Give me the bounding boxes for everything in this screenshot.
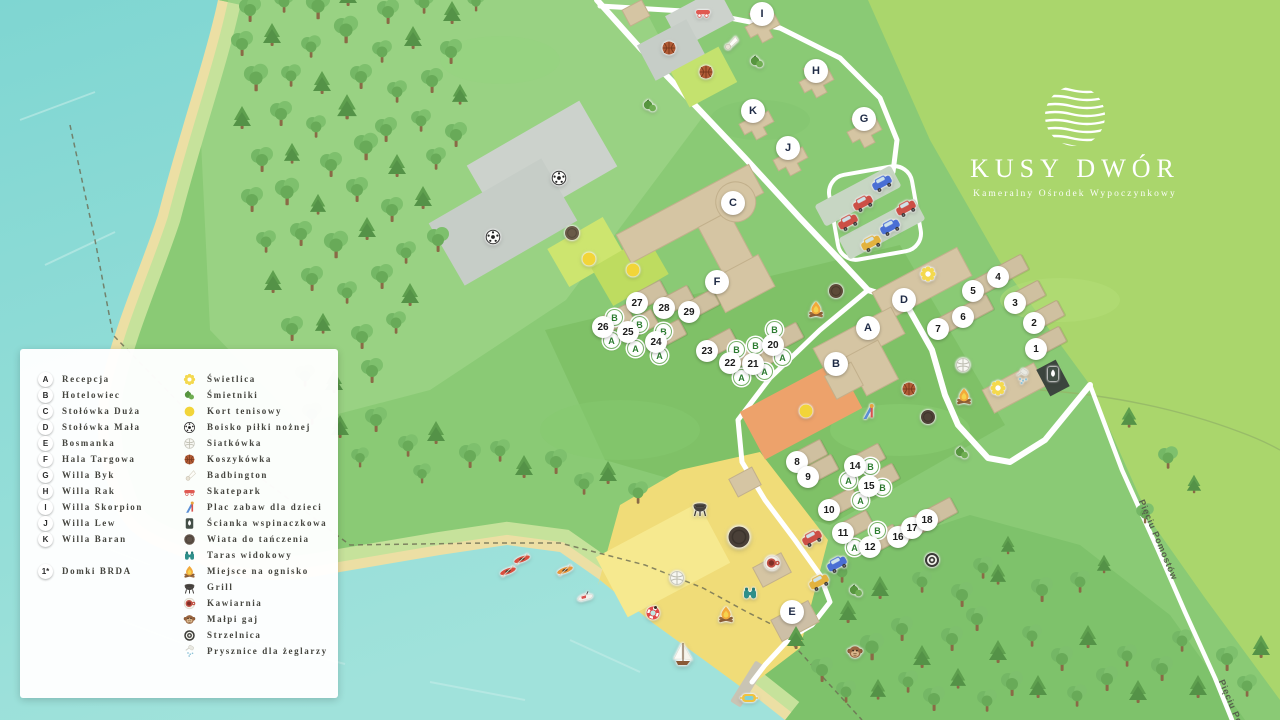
round-tree: [352, 130, 381, 169]
legend-building-label: Hotelowiec: [62, 390, 120, 400]
pine-tree: [913, 643, 931, 674]
round-tree: [350, 445, 371, 473]
round-tree: [279, 313, 305, 348]
round-tree: [1156, 444, 1179, 476]
pine-tree: [989, 638, 1007, 669]
round-tree: [488, 437, 511, 469]
plac-zabaw-icon: [858, 402, 878, 422]
cottage-badge-18: 18: [916, 509, 938, 531]
swietlica-icon: [988, 378, 1008, 398]
legend-amenity-row: Koszykówka: [180, 451, 338, 467]
round-tree: [394, 239, 417, 271]
cottage-badge-20: 20: [762, 334, 784, 356]
pine-tree: [1187, 473, 1201, 498]
legend-amenity-label: Taras widokowy: [207, 550, 292, 560]
round-tree: [268, 98, 294, 133]
pine-tree: [990, 562, 1006, 590]
round-tree: [304, 0, 333, 27]
badminton-icon: [180, 467, 198, 483]
kort-icon: [180, 403, 198, 419]
round-tree: [373, 114, 399, 149]
legend-amenity-row: Boisko piłki nożnej: [180, 419, 338, 435]
building-badge-H: H: [804, 59, 828, 83]
smietniki-icon: [747, 52, 767, 72]
legend-building-badge: E: [38, 436, 53, 451]
legend-building-badge: C: [38, 404, 53, 419]
cottage-badge-29: 29: [678, 301, 700, 323]
round-tree: [1235, 672, 1258, 704]
round-tree: [384, 309, 407, 341]
legend-amenity-label: Wiata do tańczenia: [207, 534, 310, 544]
pine-tree: [339, 0, 357, 12]
round-tree: [299, 33, 322, 65]
round-tree: [543, 446, 569, 481]
legend-amenity-label: Kawiarnia: [207, 598, 262, 608]
legend-amenity-label: Kort tenisowy: [207, 406, 282, 416]
legend-amenity-label: Koszykówka: [207, 454, 272, 464]
ognisko-icon: [180, 563, 198, 579]
pine-tree: [1121, 405, 1137, 433]
legend-building-row: H Willa Rak: [38, 483, 180, 499]
building-badge-G: G: [852, 107, 876, 131]
legend-panel: A Recepcja B Hotelowiec C Stołówka Duża …: [20, 349, 338, 698]
wiata-icon: [562, 223, 582, 243]
legend-cottages-badge: 1*: [38, 564, 53, 579]
legend-amenity-label: Skatepark: [207, 486, 261, 496]
pine-tree: [515, 453, 533, 484]
siatkowka-icon: [667, 568, 687, 588]
sailboat-icon: [669, 639, 697, 667]
cottage-badge-4: 4: [987, 266, 1009, 288]
round-tree: [1214, 643, 1240, 678]
legend-building-badge: G: [38, 468, 53, 483]
legend-amenity-row: Miejsce na ognisko: [180, 563, 338, 579]
round-tree: [457, 440, 483, 475]
pine-tree: [358, 215, 376, 246]
koszykowka-icon: [696, 62, 716, 82]
legend-building-label: Willa Baran: [62, 534, 127, 544]
round-tree: [379, 194, 405, 229]
round-tree: [1065, 682, 1088, 714]
jetski-icon: [574, 588, 594, 608]
logo-waves-icon: [955, 84, 1195, 148]
boisko-icon: [483, 227, 503, 247]
round-tree: [412, 461, 433, 489]
legend-building-label: Willa Skorpion: [62, 502, 143, 512]
koszykowka-icon: [180, 451, 198, 467]
legend-building-row: F Hala Targowa: [38, 451, 180, 467]
wiata-icon: [724, 522, 754, 552]
swietlica-icon: [180, 371, 198, 387]
pine-tree: [337, 92, 357, 126]
round-tree: [375, 0, 401, 31]
legend-amenity-row: Skatepark: [180, 483, 338, 499]
round-tree: [359, 355, 385, 390]
legend-amenities-column: Świetlica Śmietniki Kort tenisowy Boisko…: [180, 371, 338, 659]
cottage-badge-23: 23: [696, 340, 718, 362]
grill-icon: [180, 579, 198, 595]
round-tree: [1170, 627, 1193, 659]
legend-building-row: B Hotelowiec: [38, 387, 180, 403]
legend-building-row: E Bosmanka: [38, 435, 180, 451]
skatepark-icon: [180, 483, 198, 499]
plac-zabaw-icon: [180, 499, 198, 515]
building-badge-K: K: [741, 99, 765, 123]
pine-tree: [310, 192, 326, 220]
building-badge-A: A: [856, 316, 880, 340]
legend-amenity-row: Plac zabaw dla dzieci: [180, 499, 338, 515]
round-tree: [272, 0, 295, 19]
building-badge-C: C: [721, 191, 745, 215]
badminton-icon: [720, 33, 740, 53]
building-badge-F: F: [705, 270, 729, 294]
malpi-gaj-icon: [180, 611, 198, 627]
taras-icon: [180, 547, 198, 563]
cottage-badge-27: 27: [626, 292, 648, 314]
scianka-icon: [1043, 364, 1063, 384]
cottage-badge-11: 11: [832, 522, 854, 544]
pine-tree: [1001, 534, 1015, 559]
koszykowka-icon: [659, 38, 679, 58]
pine-tree: [1252, 633, 1270, 664]
kawiarnia-icon: [762, 553, 782, 573]
cottage-badge-25: 25: [617, 321, 639, 343]
legend-amenity-row: Siatkówka: [180, 435, 338, 451]
grill-icon: [690, 498, 710, 518]
round-tree: [229, 28, 255, 63]
legend-amenity-row: Kort tenisowy: [180, 403, 338, 419]
prysznice-icon: [180, 643, 198, 659]
skatepark-icon: [693, 2, 713, 22]
cottage-badge-2: 2: [1023, 312, 1045, 334]
legend-building-row: C Stołówka Duża: [38, 403, 180, 419]
cottage-badge-9: 9: [797, 466, 819, 488]
kort-icon: [579, 249, 599, 269]
cottage-badge-3: 3: [1004, 292, 1026, 314]
legend-amenity-label: Ścianka wspinaczkowa: [207, 518, 327, 528]
pine-tree: [427, 419, 445, 450]
legend-building-row: I Willa Skorpion: [38, 499, 180, 515]
cottage-badge-21: 21: [742, 353, 764, 375]
pine-tree: [414, 184, 432, 215]
pine-tree: [1029, 673, 1047, 704]
round-tree: [237, 0, 263, 29]
car-icon: [798, 525, 827, 550]
cottage-badge-24: 24: [645, 331, 667, 353]
smietniki-icon: [846, 581, 866, 601]
legend-amenity-label: Plac zabaw dla dzieci: [207, 502, 322, 512]
cottage-badge-10: 10: [818, 499, 840, 521]
pine-tree: [284, 141, 300, 169]
legend-amenity-row: Badbington: [180, 467, 338, 483]
round-tree: [335, 279, 358, 311]
round-tree: [332, 13, 361, 52]
round-tree: [1115, 642, 1138, 674]
cottage-badge-5: 5: [962, 280, 984, 302]
round-tree: [322, 228, 351, 267]
prysznice-icon: [1012, 367, 1032, 387]
legend-building-label: Willa Rak: [62, 486, 116, 496]
round-tree: [1068, 568, 1091, 600]
legend-amenity-label: Strzelnica: [207, 630, 262, 640]
round-tree: [910, 568, 933, 600]
legend-building-badge: I: [38, 500, 53, 515]
pine-tree: [1097, 553, 1111, 578]
legend-amenity-row: Ścianka wspinaczkowa: [180, 515, 338, 531]
round-tree: [834, 678, 857, 710]
legend-building-label: Willa Lew: [62, 518, 116, 528]
legend-building-row: K Willa Baran: [38, 531, 180, 547]
cottage-badge-22: 22: [719, 352, 741, 374]
legend-building-row: D Stołówka Mała: [38, 419, 180, 435]
ring-icon: [643, 603, 663, 623]
cottage-badge-14: 14: [844, 455, 866, 477]
cottage-badge-28: 28: [653, 297, 675, 319]
legend-amenity-row: Wiata do tańczenia: [180, 531, 338, 547]
legend-amenity-label: Śmietniki: [207, 390, 258, 400]
round-tree: [409, 107, 432, 139]
round-tree: [249, 144, 275, 179]
legend-amenity-label: Małpi gaj: [207, 614, 259, 624]
legend-amenity-row: Grill: [180, 579, 338, 595]
round-tree: [279, 62, 302, 94]
round-tree: [242, 61, 271, 100]
scianka-icon: [180, 515, 198, 531]
legend-amenity-label: Grill: [207, 582, 234, 592]
building-badge-J: J: [776, 136, 800, 160]
pine-tree: [313, 69, 331, 100]
kort-icon: [796, 401, 816, 421]
smietniki-icon: [952, 443, 972, 463]
round-tree: [443, 119, 469, 154]
legend-building-badge: A: [38, 372, 53, 387]
round-tree: [1094, 663, 1120, 698]
cottage-badge-15: 15: [858, 475, 880, 497]
pine-tree: [443, 0, 461, 30]
legend-building-label: Stołówka Duża: [62, 406, 141, 416]
resort-logo: KUSY DWÓR Kameralny Ośrodek Wypoczynkowy: [955, 84, 1195, 199]
kawiarnia-icon: [180, 595, 198, 611]
legend-building-label: Bosmanka: [62, 438, 115, 448]
round-tree: [304, 113, 327, 145]
smietniki-icon: [640, 96, 660, 116]
pine-tree: [599, 459, 617, 490]
cottage-badge-7: 7: [927, 318, 949, 340]
wiata-icon: [826, 281, 846, 301]
round-tree: [438, 36, 464, 71]
legend-building-badge: H: [38, 484, 53, 499]
legend-building-badge: B: [38, 388, 53, 403]
legend-buildings-column: A Recepcja B Hotelowiec C Stołówka Duża …: [38, 371, 180, 659]
round-tree: [363, 404, 389, 439]
logo-subtitle: Kameralny Ośrodek Wypoczynkowy: [955, 189, 1195, 199]
resort-map: BABABABABABABABABA1234567891011121415161…: [0, 0, 1280, 720]
ognisko-icon: [806, 299, 826, 319]
koszykowka-icon: [899, 379, 919, 399]
pine-tree: [404, 24, 422, 55]
round-tree: [896, 668, 919, 700]
round-tree: [1020, 622, 1043, 654]
round-tree: [349, 321, 375, 356]
taras-icon: [740, 583, 760, 603]
legend-amenity-label: Siatkówka: [207, 438, 262, 448]
pine-tree: [452, 82, 468, 110]
legend-amenity-label: Świetlica: [207, 374, 256, 384]
round-tree: [348, 61, 374, 96]
swietlica-icon: [918, 264, 938, 284]
round-tree: [239, 184, 265, 219]
building-badge-E: E: [780, 600, 804, 624]
round-tree: [466, 0, 487, 17]
logo-title: KUSY DWÓR: [955, 154, 1195, 184]
round-tree: [396, 432, 419, 464]
legend-building-label: Willa Byk: [62, 470, 115, 480]
pine-tree: [315, 311, 331, 339]
legend-amenity-label: Miejsce na ognisko: [207, 566, 309, 576]
round-tree: [971, 554, 994, 586]
pine-tree: [787, 624, 805, 655]
legend-building-badge: D: [38, 420, 53, 435]
pine-tree: [388, 152, 406, 183]
legend-amenity-row: Prysznice dla żeglarzy: [180, 643, 338, 659]
round-tree: [425, 224, 451, 259]
legend-amenity-label: Boisko piłki nożnej: [207, 422, 311, 432]
pine-tree: [233, 104, 251, 135]
building-badge-D: D: [892, 288, 916, 312]
pine-tree: [871, 574, 889, 605]
legend-amenity-row: Świetlica: [180, 371, 338, 387]
pine-tree: [401, 281, 419, 312]
legend-cottages-row: 1* Domki BRDA: [38, 563, 180, 579]
legend-building-badge: F: [38, 452, 53, 467]
round-tree: [1149, 653, 1175, 688]
smietniki-icon: [180, 387, 198, 403]
kort-icon: [623, 260, 643, 280]
legend-amenity-row: Małpi gaj: [180, 611, 338, 627]
building-badge-B: B: [824, 352, 848, 376]
round-tree: [809, 654, 835, 689]
legend-building-row: J Willa Lew: [38, 515, 180, 531]
strzelnica-icon: [180, 627, 198, 643]
snorkel-icon: [739, 688, 759, 708]
car-icon: [868, 170, 897, 195]
strzelnica-icon: [922, 550, 942, 570]
legend-amenity-row: Taras widokowy: [180, 547, 338, 563]
siatkowka-icon: [953, 355, 973, 375]
legend-building-badge: K: [38, 532, 53, 547]
round-tree: [419, 65, 445, 100]
round-tree: [1029, 574, 1055, 609]
pine-tree: [839, 598, 857, 629]
pine-tree: [1189, 673, 1207, 704]
round-tree: [999, 668, 1025, 703]
legend-building-label: Hala Targowa: [62, 454, 135, 464]
legend-building-row: A Recepcja: [38, 371, 180, 387]
round-tree: [949, 579, 975, 614]
legend-building-label: Recepcja: [62, 374, 110, 384]
round-tree: [385, 78, 408, 110]
building-badge-I: I: [750, 2, 774, 26]
legend-cottages-label: Domki BRDA: [62, 566, 132, 576]
legend-amenity-row: Kawiarnia: [180, 595, 338, 611]
round-tree: [299, 263, 325, 298]
boisko-icon: [180, 419, 198, 435]
round-tree: [572, 470, 595, 502]
pine-tree: [950, 666, 966, 694]
legend-amenity-row: Śmietniki: [180, 387, 338, 403]
round-tree: [412, 0, 435, 20]
wiata-icon: [918, 407, 938, 427]
legend-amenity-row: Strzelnica: [180, 627, 338, 643]
ognisko-icon: [954, 386, 974, 406]
round-tree: [424, 145, 447, 177]
pine-tree: [264, 268, 282, 299]
cottage-badge-1: 1: [1025, 338, 1047, 360]
cottage-badge-6: 6: [952, 306, 974, 328]
round-tree: [344, 174, 370, 209]
pine-tree: [1129, 678, 1147, 709]
legend-amenity-label: Badbington: [207, 470, 268, 480]
wiata-icon: [180, 531, 198, 547]
pine-tree: [1079, 623, 1097, 654]
pine-tree: [263, 21, 281, 52]
kayak-icon: [555, 563, 575, 583]
cottage-badge-26: 26: [592, 316, 614, 338]
legend-amenity-label: Prysznice dla żeglarzy: [207, 646, 328, 656]
round-tree: [370, 38, 393, 70]
pine-tree: [870, 677, 886, 705]
siatkowka-icon: [180, 435, 198, 451]
round-tree: [626, 479, 649, 511]
round-tree: [975, 687, 998, 719]
round-tree: [369, 261, 395, 296]
legend-building-badge: J: [38, 516, 53, 531]
round-tree: [921, 683, 947, 718]
kayak-icon: [498, 564, 518, 584]
round-tree: [964, 603, 990, 638]
legend-building-row: G Willa Byk: [38, 467, 180, 483]
boisko-icon: [549, 168, 569, 188]
round-tree: [939, 623, 965, 658]
cottage-badge-12: 12: [859, 536, 881, 558]
round-tree: [288, 218, 314, 253]
round-tree: [273, 175, 302, 214]
legend-building-label: Stołówka Mała: [62, 422, 141, 432]
round-tree: [889, 613, 915, 648]
round-tree: [254, 228, 277, 260]
ognisko-icon: [716, 604, 736, 624]
round-tree: [1049, 643, 1075, 678]
round-tree: [318, 149, 344, 184]
malpi-gaj-icon: [845, 642, 865, 662]
